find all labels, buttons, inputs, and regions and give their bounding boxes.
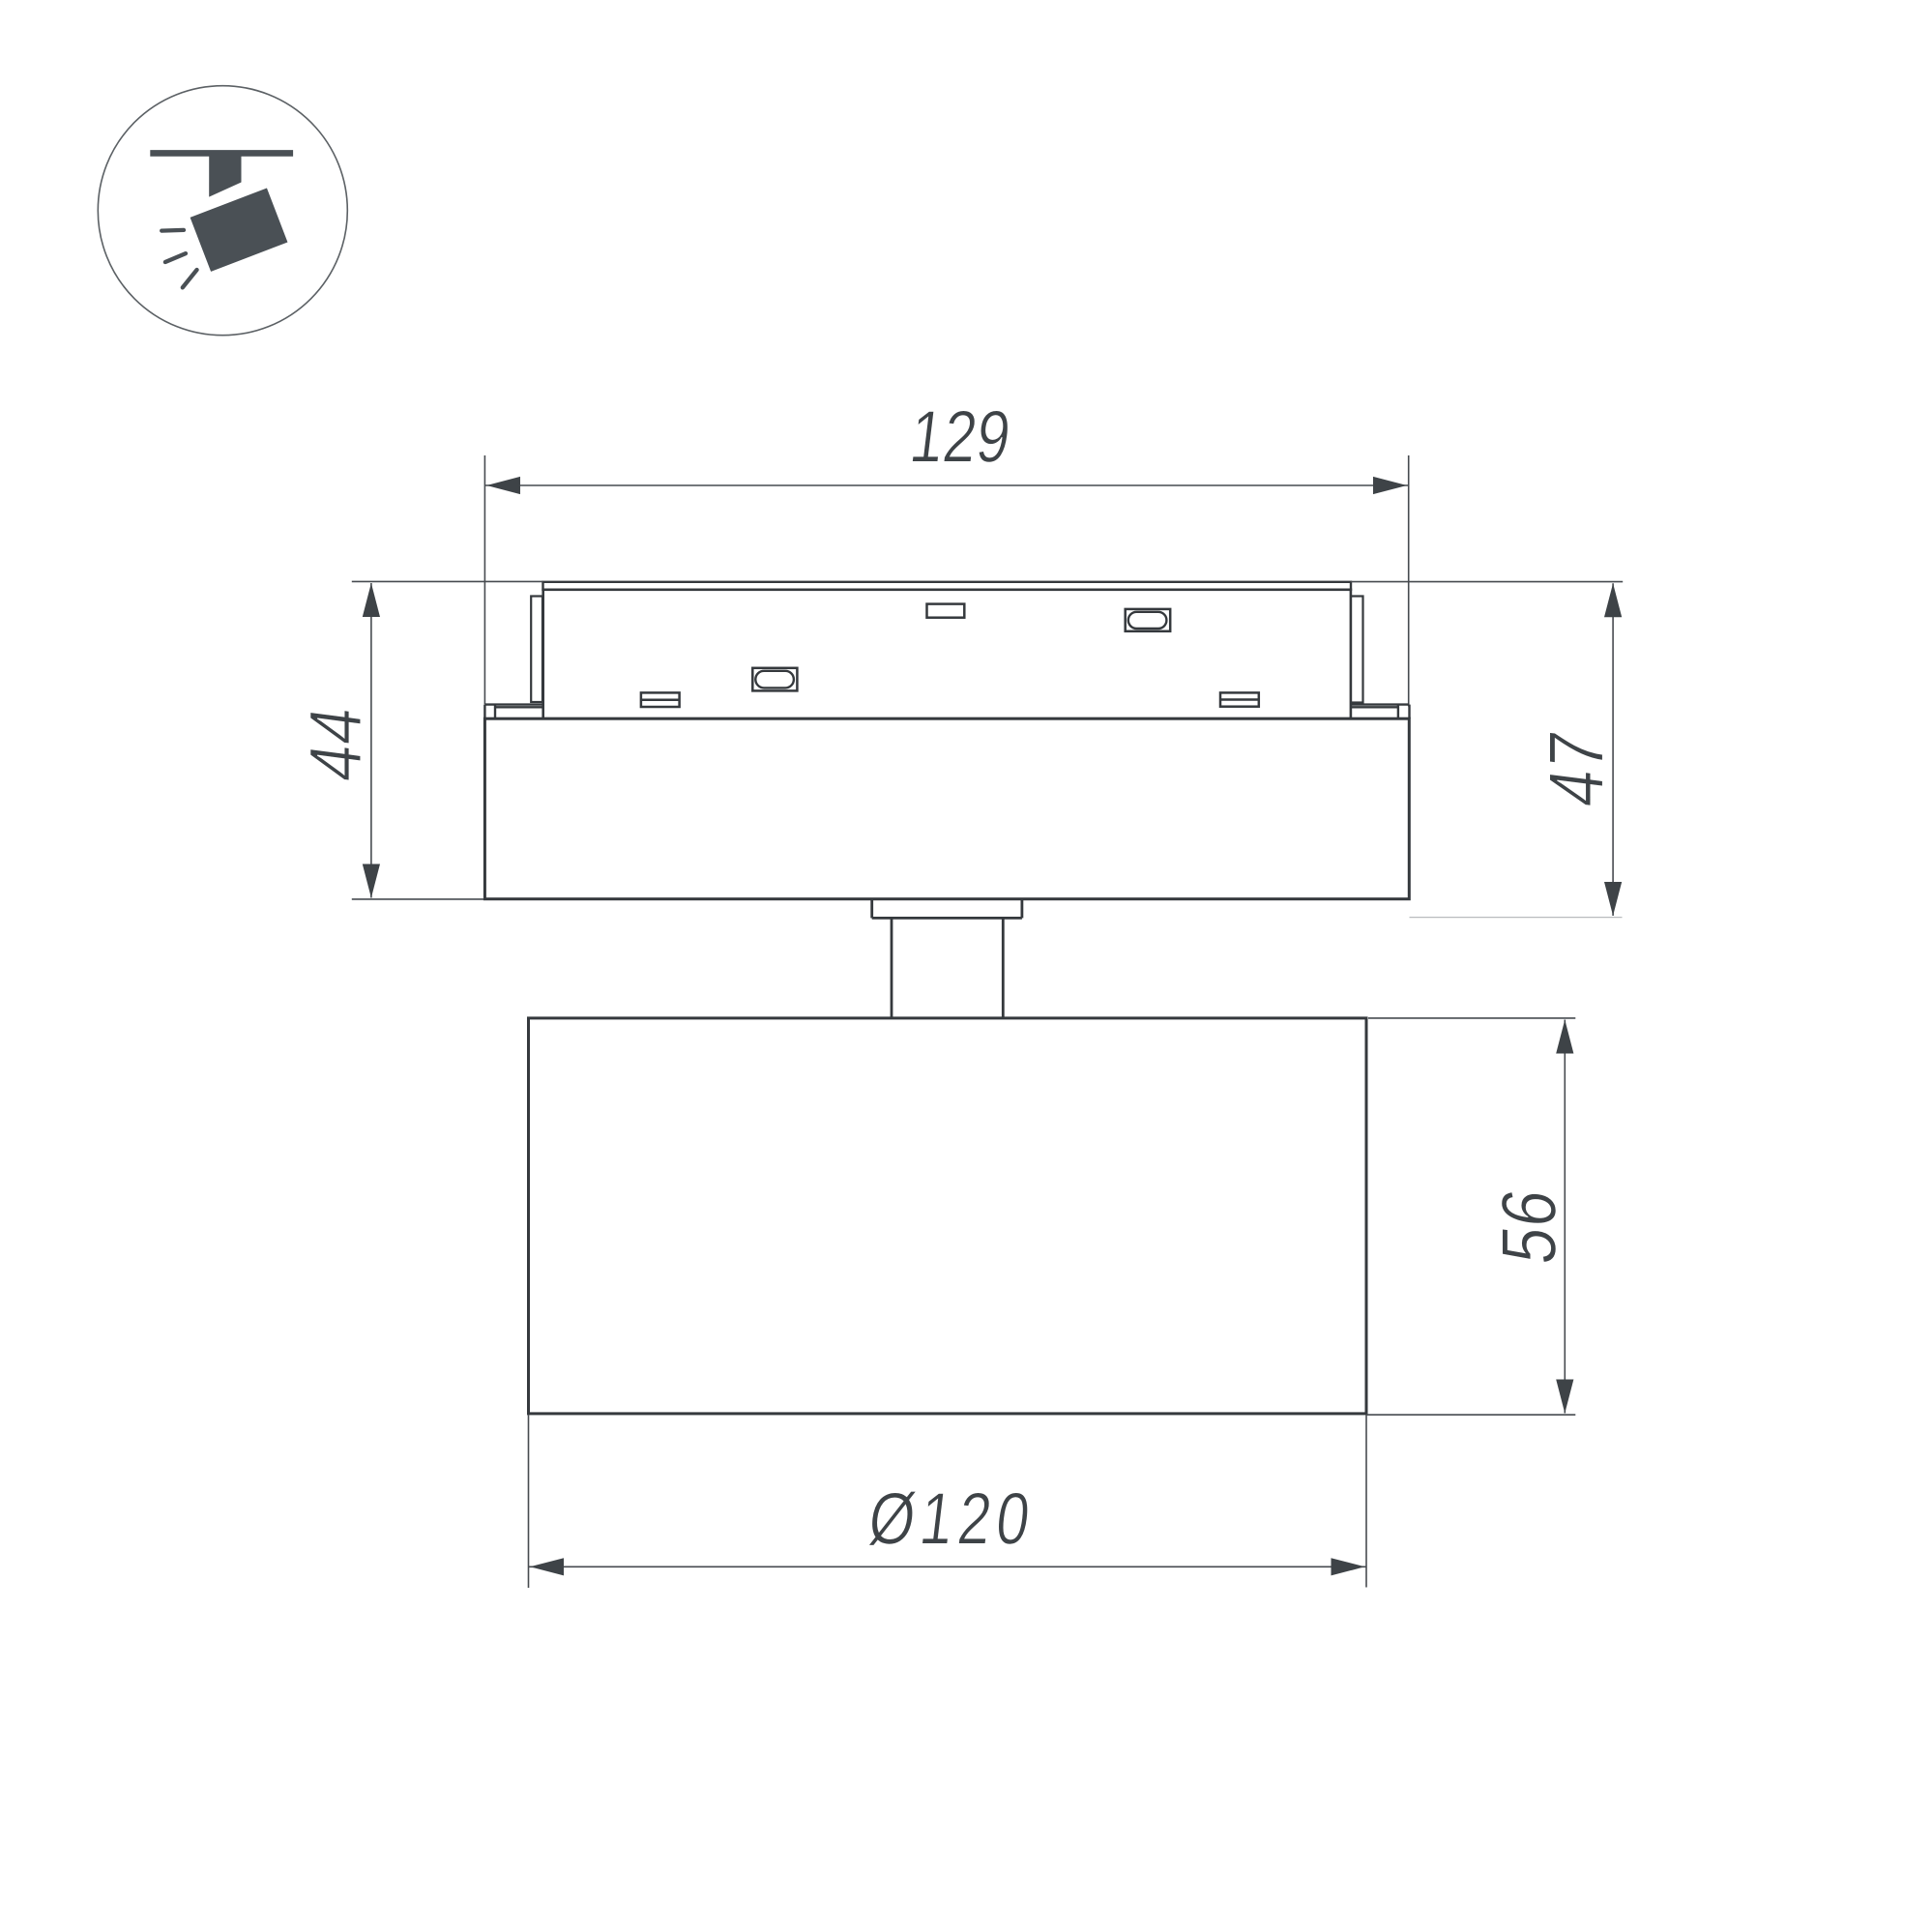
svg-text:Ø120: Ø120 [864, 1477, 1039, 1560]
svg-text:129: 129 [906, 395, 1015, 477]
svg-text:47: 47 [1533, 726, 1619, 811]
svg-text:44: 44 [295, 701, 377, 785]
svg-text:56: 56 [1485, 1184, 1571, 1269]
